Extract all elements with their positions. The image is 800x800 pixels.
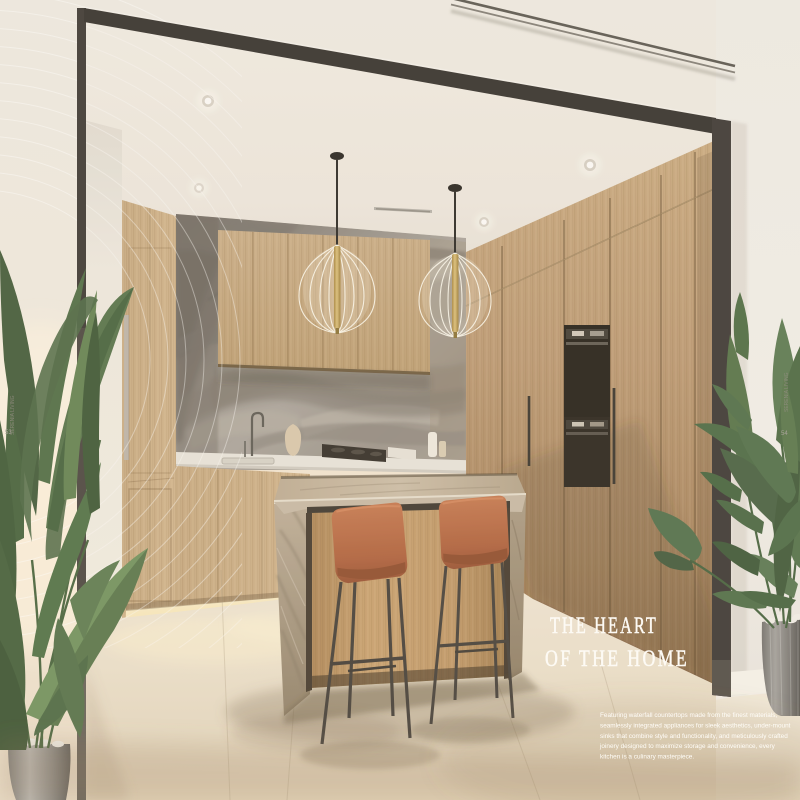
svg-text:joinery designed to maximize s: joinery designed to maximize storage and… [599,743,776,750]
svg-text:54: 54 [781,431,788,437]
svg-text:seamlessly integrated applianc: seamlessly integrated appliances for sle… [600,722,791,729]
svg-text:OF THE HOME: OF THE HOME [545,646,689,671]
svg-text:Featuring waterfall countertop: Featuring waterfall countertops made fro… [600,712,777,719]
svg-text:SERENIA LIVING: SERENIA LIVING [784,372,790,412]
svg-text:SERENIA LIVING: SERENIA LIVING [10,395,16,435]
svg-text:THE HEART: THE HEART [550,613,658,638]
svg-text:sinks that combine style and f: sinks that combine style and functionali… [600,733,788,740]
svg-text:kitchen is a culinary masterpi: kitchen is a culinary masterpiece. [600,754,694,761]
